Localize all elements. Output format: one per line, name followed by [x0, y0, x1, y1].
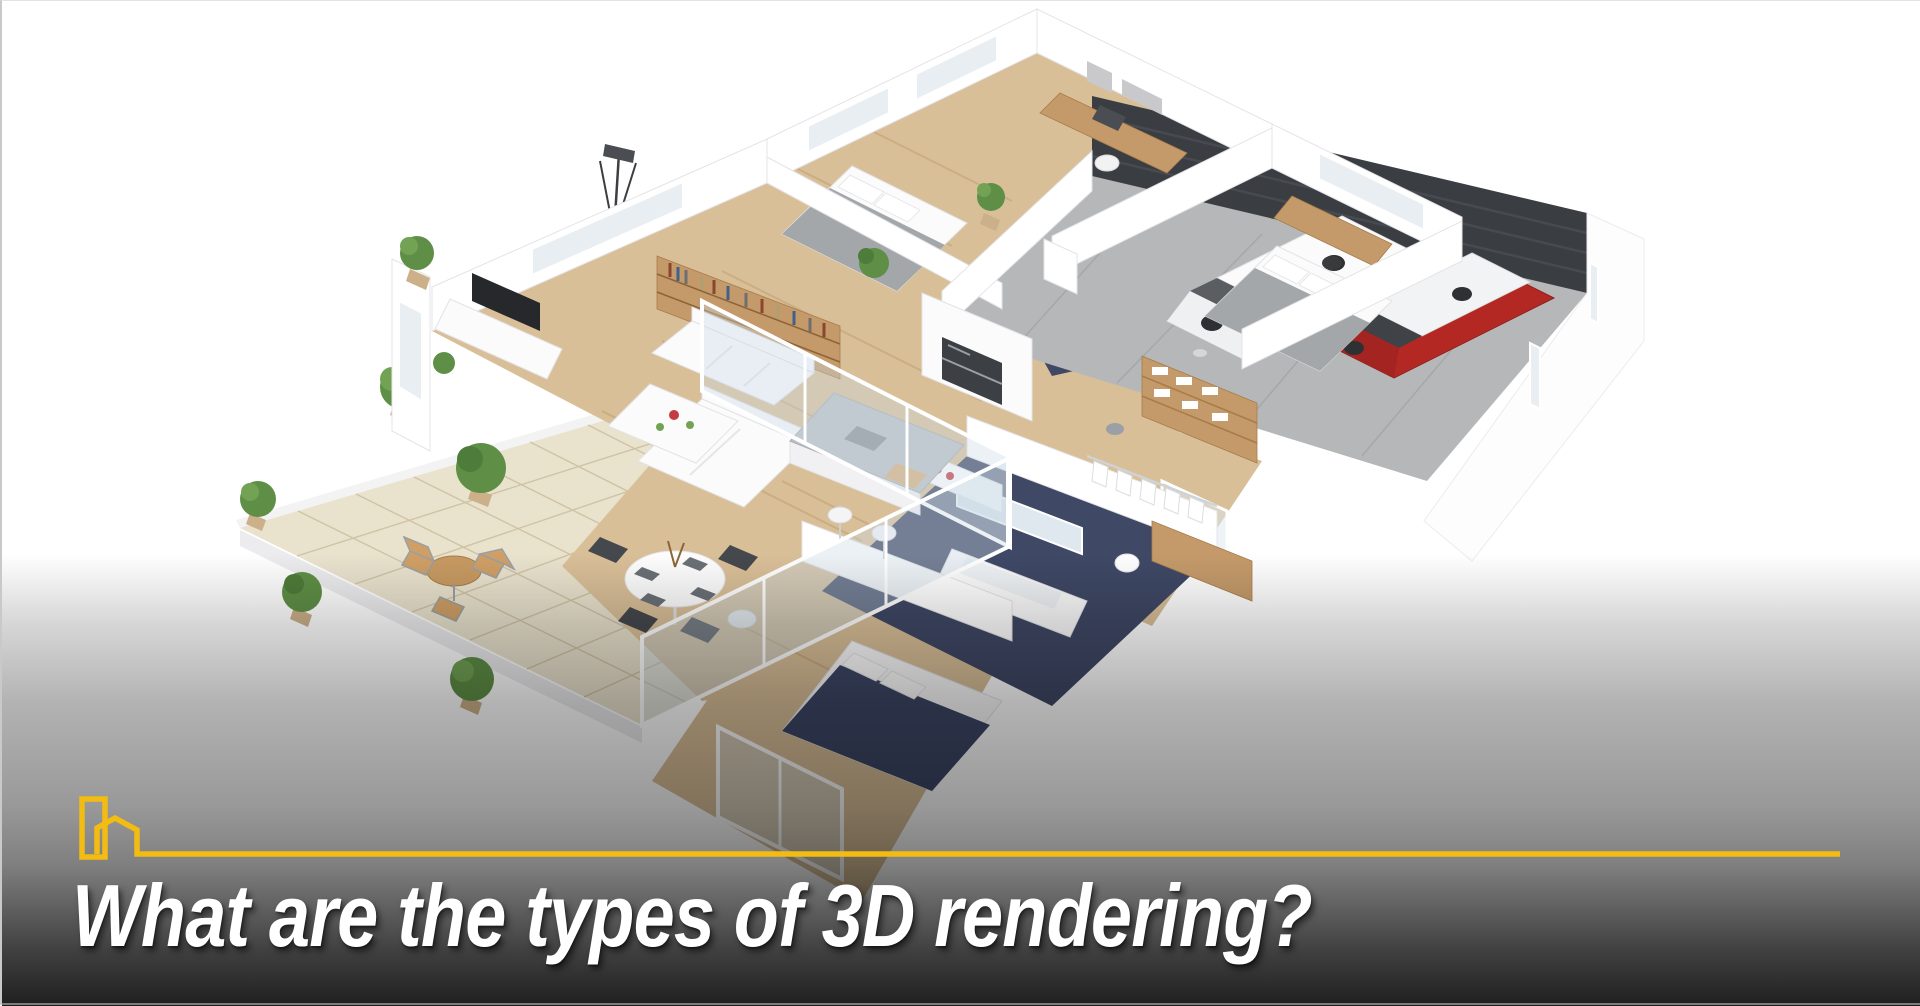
hero-image: What are the types of 3D rendering? [0, 0, 1920, 1005]
page-title: What are the types of 3D rendering? [72, 871, 1312, 961]
stool [828, 507, 852, 523]
floorplan-3d-render [2, 1, 1920, 1006]
